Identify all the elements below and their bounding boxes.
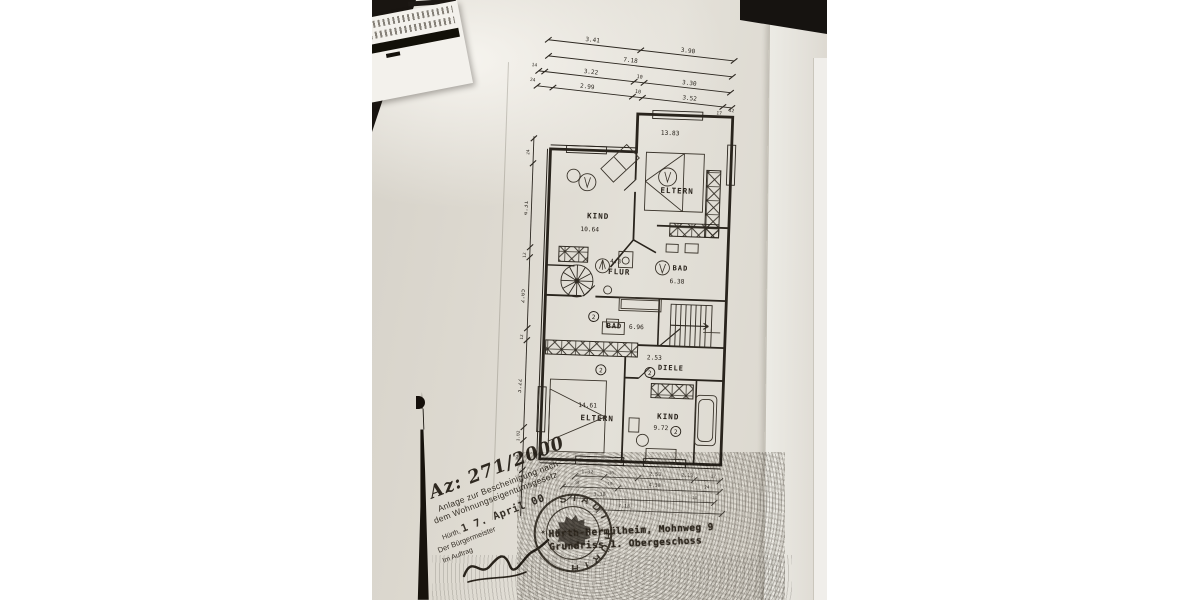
svg-text:12: 12 <box>728 108 734 115</box>
sink-icon <box>603 286 611 294</box>
room-label: KIND <box>587 211 610 221</box>
furniture-symbols <box>548 142 727 465</box>
straight-stair-icon <box>670 304 712 347</box>
svg-text:14: 14 <box>692 495 698 500</box>
svg-text:3.22: 3.22 <box>583 68 599 77</box>
svg-text:4.31: 4.31 <box>522 200 530 215</box>
spiral-stair-icon <box>560 264 593 297</box>
closet-hatch <box>544 165 721 400</box>
svg-text:1.32: 1.32 <box>581 469 593 475</box>
furniture-circle <box>658 168 677 187</box>
photocopy-edge-line <box>492 62 509 520</box>
room-label: DIELE <box>658 364 684 373</box>
unit-number: 2 <box>648 370 652 377</box>
room-label: KIND <box>657 412 680 422</box>
room-label: ELTERN <box>580 413 614 423</box>
under-sheet-mark <box>386 51 401 58</box>
unit-number: 2 <box>599 367 603 374</box>
room-area: 6.96 <box>629 324 644 332</box>
svg-text:3.22: 3.22 <box>516 378 524 393</box>
svg-text:10: 10 <box>607 481 613 486</box>
unit-number: 2 <box>674 429 678 436</box>
svg-text:3.41: 3.41 <box>585 36 601 45</box>
toilet-icon <box>685 244 698 253</box>
document-photo: 3.41 3.90 7.18 14 3.22 10 3.30 24 2.99 1… <box>372 0 827 600</box>
svg-text:30: 30 <box>574 480 580 485</box>
svg-text:10: 10 <box>636 74 643 81</box>
svg-text:17: 17 <box>711 474 717 479</box>
room-label: ELTERN <box>660 186 694 196</box>
room-label: BAD <box>672 264 688 273</box>
svg-text:24: 24 <box>704 484 710 489</box>
room-area: 2.53 <box>647 354 662 362</box>
svg-text:7.18: 7.18 <box>618 503 630 509</box>
room-area: 13.83 <box>661 130 680 138</box>
svg-text:2.05: 2.05 <box>519 288 527 303</box>
room-label: FLUR <box>608 267 631 277</box>
room-area: 14.61 <box>578 402 597 410</box>
svg-text:14: 14 <box>531 62 537 69</box>
room-area: 10.64 <box>580 226 599 234</box>
dimension-chain-top: 3.41 3.90 7.18 14 3.22 10 3.30 24 2.99 1… <box>528 30 741 118</box>
svg-text:24: 24 <box>525 149 531 155</box>
svg-text:2.53: 2.53 <box>649 472 661 478</box>
room-label: BAD <box>606 322 622 331</box>
svg-text:12: 12 <box>522 252 528 258</box>
svg-text:3.52: 3.52 <box>682 94 698 103</box>
room-area: 4.3 <box>610 258 621 265</box>
room-area: 6.38 <box>669 278 684 286</box>
side-paper-sheet-edge <box>813 58 827 600</box>
svg-text:2.99: 2.99 <box>580 83 596 92</box>
unit-number: 2 <box>592 314 596 321</box>
svg-text:3.90: 3.90 <box>680 47 696 56</box>
svg-text:24: 24 <box>530 77 536 84</box>
svg-text:2.13: 2.13 <box>681 473 693 479</box>
svg-text:3.30: 3.30 <box>682 79 698 88</box>
room-area: 9.72 <box>653 425 668 433</box>
svg-text:4.38: 4.38 <box>649 483 661 489</box>
svg-text:12: 12 <box>519 334 525 340</box>
svg-text:7.18: 7.18 <box>623 56 639 65</box>
svg-text:10: 10 <box>635 89 642 96</box>
stamp-star-icon: ✶ <box>539 527 546 537</box>
photocopy-blob <box>416 396 425 409</box>
svg-text:1.02: 1.02 <box>515 430 521 441</box>
under-sheet-paper <box>372 0 473 103</box>
svg-text:30: 30 <box>609 470 615 475</box>
